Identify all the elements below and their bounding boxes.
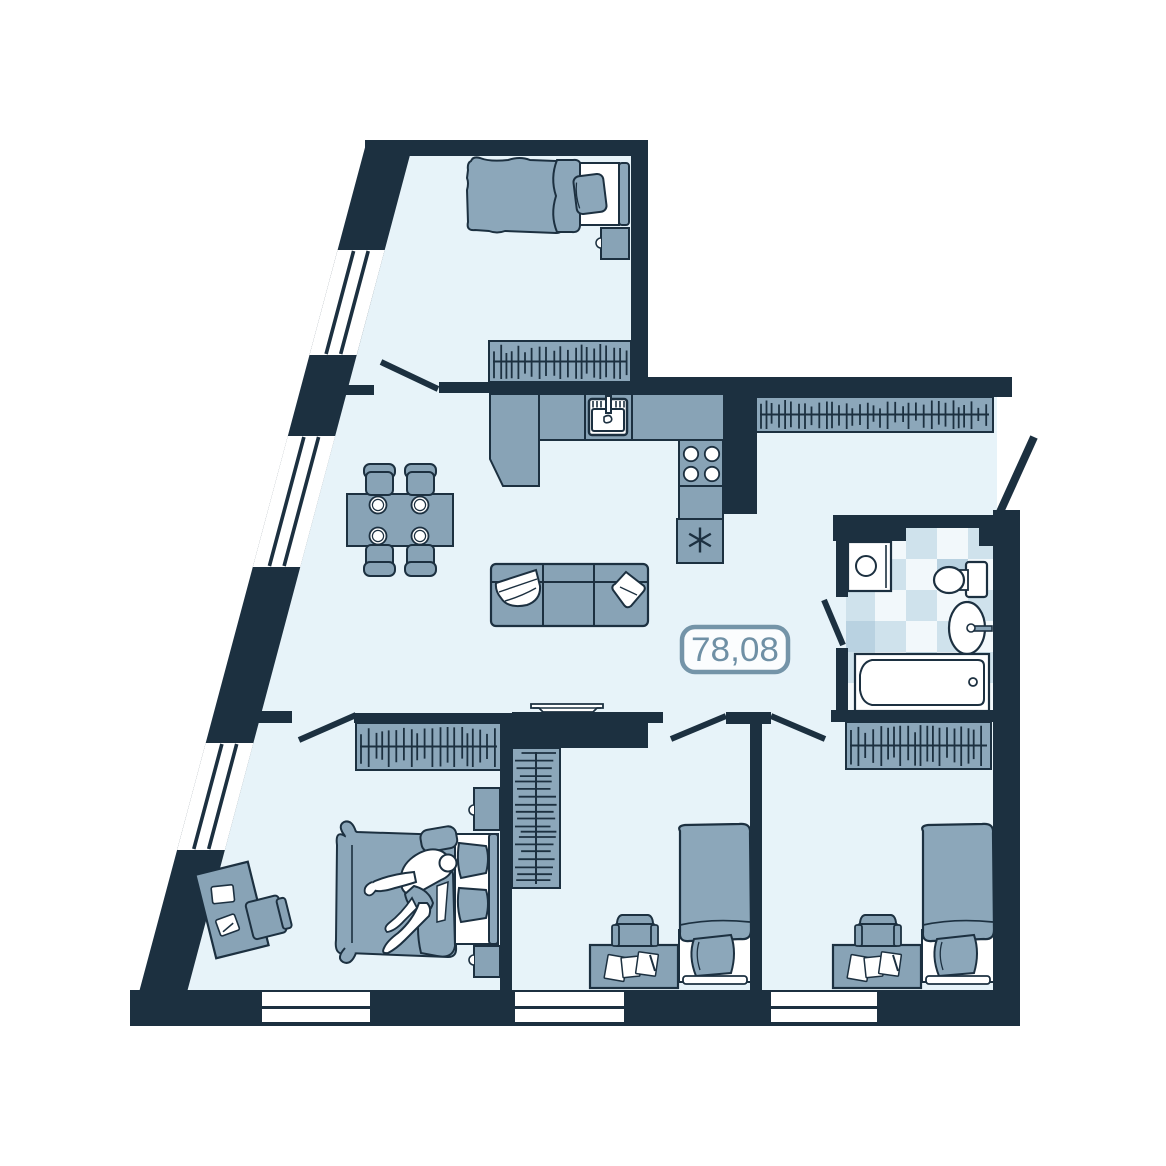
svg-text:78,08: 78,08 — [691, 631, 779, 669]
